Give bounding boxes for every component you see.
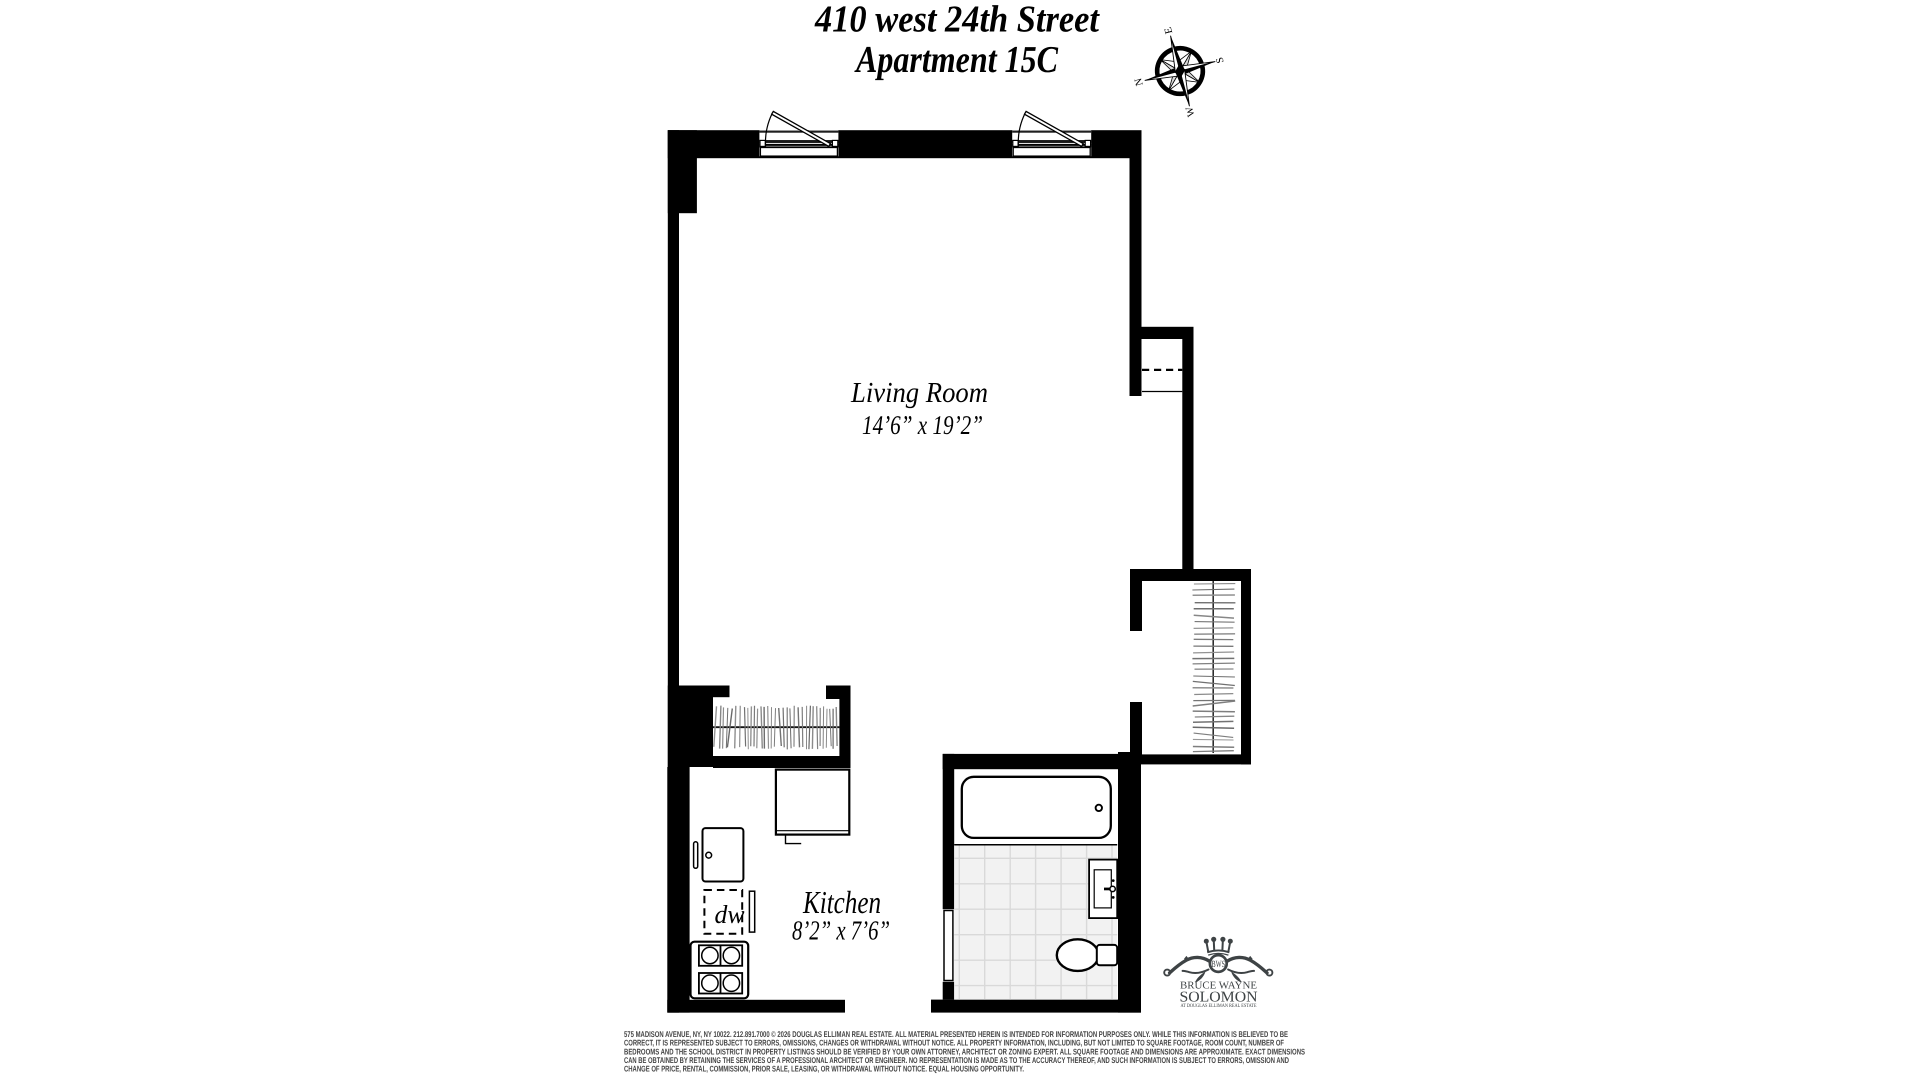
- svg-text:410 west 24th Street: 410 west 24th Street: [814, 0, 1100, 41]
- svg-text:Living Room: Living Room: [850, 377, 988, 409]
- svg-text:dw: dw: [715, 900, 746, 929]
- svg-text:14’6” x 19’2”: 14’6” x 19’2”: [862, 410, 983, 440]
- svg-text:AT DOUGLAS ELLIMAN REAL ESTATE: AT DOUGLAS ELLIMAN REAL ESTATE: [1181, 1003, 1257, 1009]
- svg-text:8’2” x 7’6”: 8’2” x 7’6”: [792, 915, 890, 946]
- svg-text:CHANGE OF PRICE, RENTAL, COMMI: CHANGE OF PRICE, RENTAL, COMMISSION, PRI…: [624, 1064, 1024, 1074]
- svg-text:Apartment 15C: Apartment 15C: [854, 39, 1058, 81]
- svg-text:BWS: BWS: [1212, 960, 1226, 970]
